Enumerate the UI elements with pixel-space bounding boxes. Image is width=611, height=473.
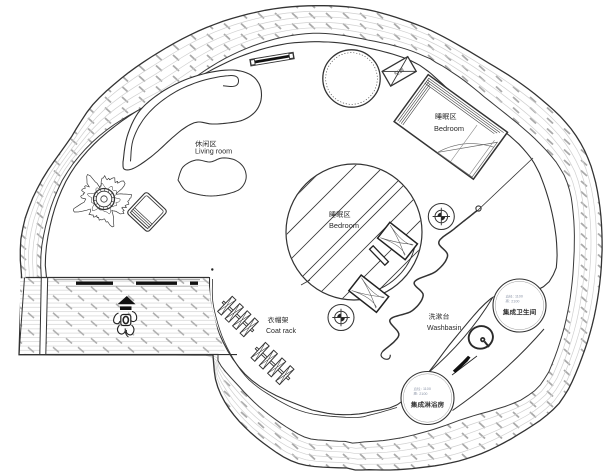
svg-text:: 1100: : 1100: [513, 295, 523, 299]
svg-text:Bedroom: Bedroom: [434, 124, 464, 133]
svg-text:: 1100: : 1100: [421, 387, 431, 391]
svg-text:: 2100: : 2100: [509, 299, 519, 303]
svg-text:: 2100: : 2100: [417, 392, 427, 396]
svg-text:Bedroom: Bedroom: [329, 221, 359, 230]
svg-text:Washbasin: Washbasin: [427, 325, 461, 332]
svg-text:Living room: Living room: [195, 147, 232, 156]
svg-text:Coat rack: Coat rack: [266, 328, 296, 335]
